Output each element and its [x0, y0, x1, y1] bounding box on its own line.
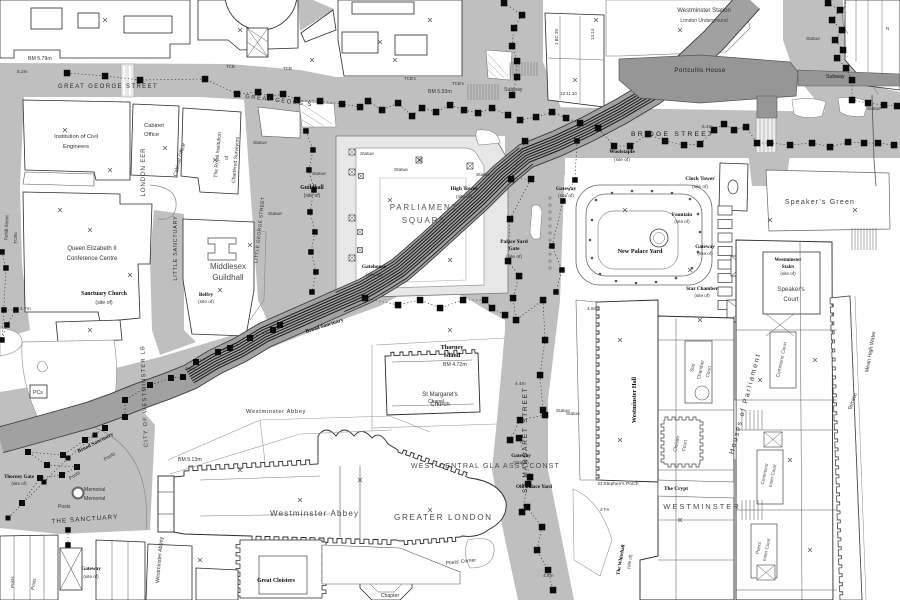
svg-text:(site of): (site of) [83, 574, 99, 579]
svg-text:Palace Yard: Palace Yard [500, 239, 528, 245]
svg-text:Statue: Statue [268, 211, 282, 217]
svg-text:St Stephen's Porch: St Stephen's Porch [598, 481, 639, 487]
svg-text:Queen Elizabeth II: Queen Elizabeth II [67, 246, 117, 252]
svg-text:TCBs: TCBs [13, 232, 18, 244]
svg-text:BM 5.79m: BM 5.79m [28, 56, 52, 62]
svg-text:4.4m: 4.4m [515, 381, 526, 387]
svg-text:(site of): (site of) [456, 194, 472, 200]
svg-text:Statue: Statue [806, 36, 820, 42]
svg-text:Memorial: Memorial [84, 496, 105, 502]
svg-text:Gatehouse: Gatehouse [362, 264, 387, 270]
svg-text:St Margaret's: St Margaret's [422, 392, 458, 398]
svg-text:Court: Court [783, 296, 798, 303]
svg-text:Gateway: Gateway [556, 186, 577, 192]
svg-text:Sanctuary Church: Sanctuary Church [81, 291, 128, 297]
svg-text:Institution of Civil: Institution of Civil [54, 134, 98, 140]
svg-text:New Palace Yard: New Palace Yard [618, 248, 663, 255]
svg-text:Statue: Statue [253, 140, 267, 146]
svg-text:13 14: 13 14 [590, 28, 595, 40]
svg-text:GREAT GEORGE STREET: GREAT GEORGE STREET [58, 84, 158, 90]
svg-text:Statue: Statue [312, 171, 326, 177]
svg-text:Statue: Statue [867, 106, 881, 112]
svg-text:Clock Tower: Clock Tower [685, 176, 715, 182]
svg-text:TCB: TCB [283, 66, 292, 71]
svg-text:Great Cloisters: Great Cloisters [257, 578, 295, 584]
svg-text:Portcullis House: Portcullis House [674, 68, 726, 74]
svg-text:(site of): (site of) [198, 299, 214, 305]
svg-text:TCB: TCB [226, 64, 235, 69]
svg-text:Middlesex: Middlesex [210, 262, 246, 271]
svg-text:4.6m: 4.6m [587, 306, 598, 312]
svg-text:The Crypt: The Crypt [664, 486, 688, 492]
svg-text:(site of): (site of) [366, 272, 382, 278]
svg-text:Chapel: Chapel [428, 399, 444, 405]
svg-text:Conference Centre: Conference Centre [67, 256, 118, 262]
svg-text:ST MARGARET STREET: ST MARGARET STREET [522, 386, 529, 493]
svg-text:6.4m: 6.4m [702, 124, 713, 130]
svg-text:TCB's: TCB's [404, 76, 417, 81]
svg-text:Star Chamber: Star Chamber [686, 286, 718, 292]
svg-text:Stairs: Stairs [782, 265, 795, 270]
svg-text:12 11 10: 12 11 10 [560, 91, 577, 96]
svg-text:Gateway: Gateway [511, 453, 531, 459]
svg-text:Old Palace Yard: Old Palace Yard [516, 484, 552, 490]
svg-text:Westminster Abbey: Westminster Abbey [270, 509, 359, 518]
svg-text:Tothill Street: Tothill Street [4, 215, 10, 241]
svg-text:BM 4.72m: BM 4.72m [443, 362, 467, 368]
svg-text:(site of): (site of) [506, 254, 522, 260]
svg-text:1 BC 39: 1 BC 39 [554, 29, 559, 45]
svg-text:Subway: Subway [826, 74, 845, 80]
svg-text:BM 5.93m: BM 5.93m [428, 89, 452, 95]
svg-text:Speaker's Green: Speaker's Green [785, 199, 855, 206]
svg-text:(site of): (site of) [674, 219, 690, 224]
svg-text:Statue: Statue [476, 172, 490, 178]
svg-text:Belfry: Belfry [199, 292, 214, 298]
svg-text:Guildhall: Guildhall [212, 273, 243, 282]
svg-text:Westminster Station: Westminster Station [677, 8, 731, 14]
svg-text:Gateway: Gateway [81, 566, 101, 572]
svg-text:PCs: PCs [33, 390, 43, 396]
svg-text:London Underground: London Underground [680, 18, 727, 24]
svg-text:Memorial: Memorial [84, 487, 105, 493]
svg-text:(site of): (site of) [11, 481, 27, 486]
svg-text:(site of): (site of) [558, 193, 574, 199]
svg-text:Cabinet: Cabinet [144, 123, 164, 129]
svg-text:Office: Office [144, 132, 159, 138]
svg-text:WEST CENTRAL GLA ASSY CONST: WEST CENTRAL GLA ASSY CONST [411, 463, 560, 470]
svg-text:High Tower: High Tower [450, 186, 478, 192]
svg-text:Woolstaple: Woolstaple [609, 149, 635, 155]
svg-text:Statue: Statue [394, 167, 408, 173]
svg-text:Speaker's: Speaker's [777, 286, 804, 293]
svg-text:Westminster Hall: Westminster Hall [631, 377, 638, 423]
svg-text:Gate: Gate [508, 246, 520, 252]
svg-text:SQUARE: SQUARE [402, 216, 447, 225]
svg-text:N: N [886, 26, 889, 31]
svg-text:(site of): (site of) [694, 293, 710, 298]
svg-text:(site of): (site of) [780, 271, 796, 276]
svg-text:Gateway: Gateway [695, 244, 715, 250]
svg-text:GREATER LONDON: GREATER LONDON [394, 513, 493, 522]
svg-text:(site of): (site of) [697, 251, 713, 256]
svg-text:5.2m: 5.2m [17, 69, 28, 75]
svg-text:2 Fn: 2 Fn [600, 507, 610, 512]
svg-text:Chapter: Chapter [381, 593, 400, 599]
svg-text:Fountain: Fountain [672, 212, 692, 218]
svg-text:Statue: Statue [556, 408, 570, 414]
svg-text:Subway: Subway [504, 87, 523, 93]
svg-text:Posts: Posts [10, 576, 15, 588]
svg-text:Engineers: Engineers [63, 144, 89, 150]
svg-text:4.6m: 4.6m [543, 573, 554, 579]
svg-text:Thorney: Thorney [441, 344, 465, 351]
svg-text:WESTMINSTER: WESTMINSTER [663, 502, 740, 511]
svg-text:4.6m: 4.6m [185, 366, 196, 372]
svg-text:Westminster Abbey: Westminster Abbey [246, 409, 306, 415]
svg-text:Westminster: Westminster [775, 258, 803, 263]
svg-text:(site of): (site of) [95, 300, 113, 306]
svg-text:Statue: Statue [360, 151, 374, 157]
svg-text:Island: Island [444, 352, 461, 359]
svg-text:(site of): (site of) [692, 184, 708, 190]
svg-text:4.7m: 4.7m [20, 306, 31, 312]
svg-text:BM 5.13m: BM 5.13m [178, 457, 202, 463]
svg-text:BRIDGE STREET: BRIDGE STREET [631, 131, 714, 138]
svg-text:Thorney Gate: Thorney Gate [4, 475, 35, 480]
svg-text:PARLIAMENT: PARLIAMENT [390, 203, 459, 212]
svg-text:LONDON EER: LONDON EER [140, 148, 147, 197]
svg-text:Guildhall: Guildhall [300, 185, 324, 191]
svg-text:LITTLE SANCTUARY: LITTLE SANCTUARY [173, 215, 179, 280]
svg-text:(site of): (site of) [304, 193, 321, 199]
svg-text:(site of): (site of) [614, 157, 630, 163]
svg-text:TCB's: TCB's [452, 81, 465, 86]
svg-text:Posts: Posts [58, 504, 71, 510]
